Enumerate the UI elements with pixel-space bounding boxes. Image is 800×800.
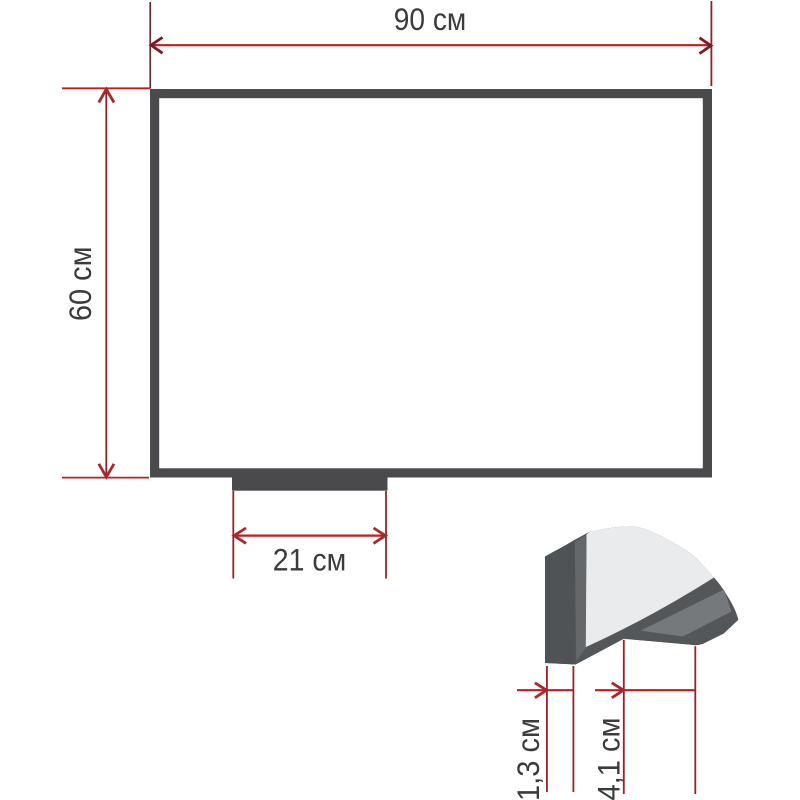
svg-text:21 см: 21 см: [273, 542, 347, 577]
svg-text:1,3 см: 1,3 см: [511, 718, 546, 800]
svg-text:60 см: 60 см: [63, 247, 98, 322]
svg-text:90 см: 90 см: [394, 2, 467, 37]
svg-text:4,1 см: 4,1 см: [592, 718, 627, 800]
